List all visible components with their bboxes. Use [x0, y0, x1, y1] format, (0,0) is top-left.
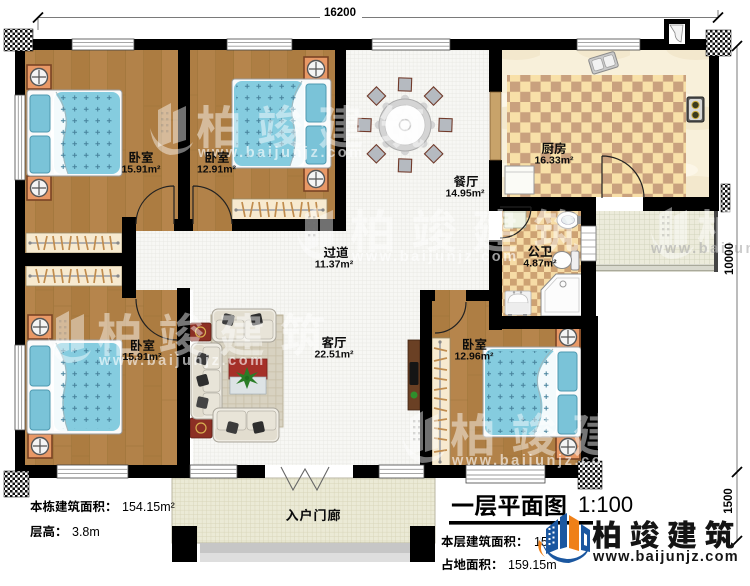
- svg-text:154.15m²: 154.15m²: [122, 500, 175, 514]
- svg-text:15.91m²: 15.91m²: [121, 164, 161, 176]
- svg-text:16200: 16200: [324, 7, 356, 19]
- svg-text:14.95m²: 14.95m²: [445, 188, 485, 200]
- svg-text:3.8m: 3.8m: [72, 525, 100, 539]
- svg-text:16.33m²: 16.33m²: [534, 155, 574, 167]
- svg-text:11.37m²: 11.37m²: [315, 259, 354, 271]
- svg-text:12.96m²: 12.96m²: [454, 351, 494, 363]
- svg-text:www.baijunjz.com: www.baijunjz.com: [592, 549, 739, 565]
- svg-text:10000: 10000: [724, 243, 736, 275]
- svg-text:22.51m²: 22.51m²: [314, 349, 354, 361]
- svg-text:www.baijunjz.com: www.baijunjz.com: [351, 249, 519, 265]
- svg-text:159.15m: 159.15m: [508, 558, 557, 572]
- svg-text:1500: 1500: [723, 488, 735, 514]
- svg-text:12.91m²: 12.91m²: [197, 164, 237, 176]
- svg-text:4.87m²: 4.87m²: [523, 258, 557, 270]
- svg-text:15.91m²: 15.91m²: [122, 351, 162, 363]
- svg-text:www.baijunjz.com: www.baijunjz.com: [451, 453, 619, 469]
- svg-text:1:100: 1:100: [578, 492, 633, 517]
